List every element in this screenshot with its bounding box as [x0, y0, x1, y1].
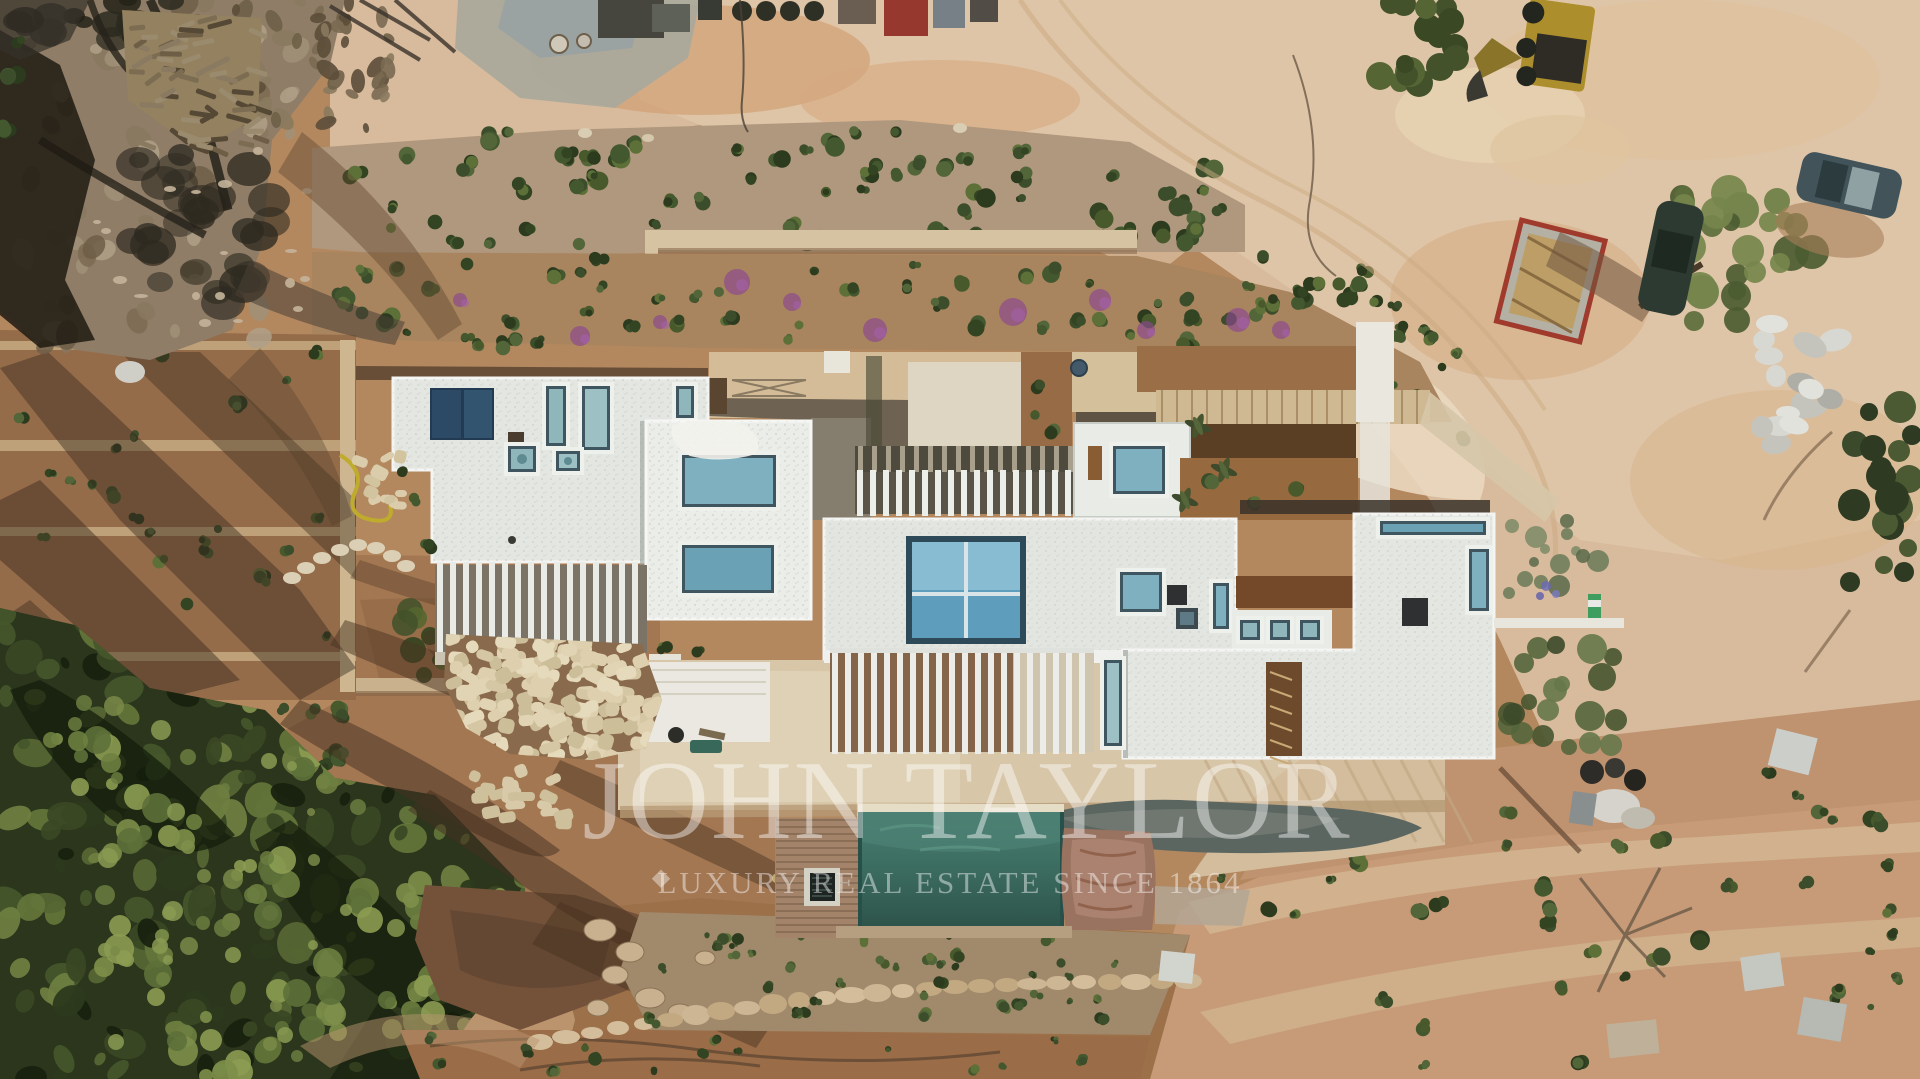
svg-text:JOHN TAYLOR: JOHN TAYLOR [582, 739, 1351, 863]
svg-text:LUXURY REAL ESTATE SINCE 1864: LUXURY REAL ESTATE SINCE 1864 [657, 865, 1242, 900]
